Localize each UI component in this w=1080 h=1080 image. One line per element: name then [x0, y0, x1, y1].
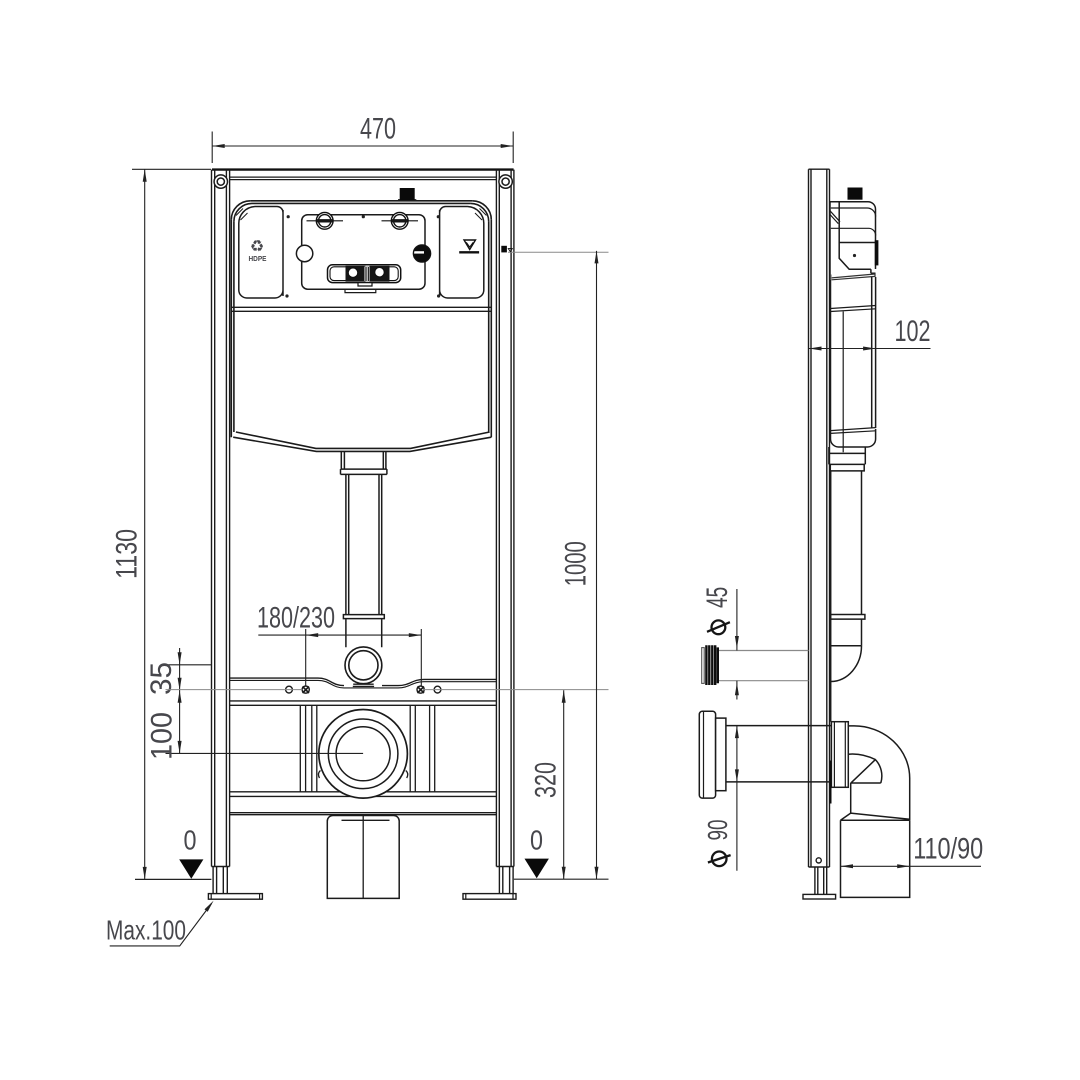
svg-text:90: 90	[702, 820, 733, 841]
svg-text:Max.100: Max.100	[106, 915, 186, 946]
svg-text:320: 320	[530, 762, 563, 798]
svg-text:HDPE: HDPE	[249, 254, 267, 263]
svg-text:102: 102	[895, 315, 931, 348]
svg-text:♻: ♻	[250, 239, 264, 256]
svg-text:45: 45	[701, 587, 734, 608]
svg-text:110/90: 110/90	[913, 833, 983, 866]
svg-text:100: 100	[146, 712, 179, 760]
svg-text:1130: 1130	[111, 529, 144, 579]
svg-text:470: 470	[360, 113, 396, 146]
svg-text:180/230: 180/230	[257, 602, 335, 635]
svg-text:1000: 1000	[560, 541, 593, 586]
svg-text:0: 0	[530, 825, 543, 856]
svg-text:0: 0	[184, 825, 197, 856]
